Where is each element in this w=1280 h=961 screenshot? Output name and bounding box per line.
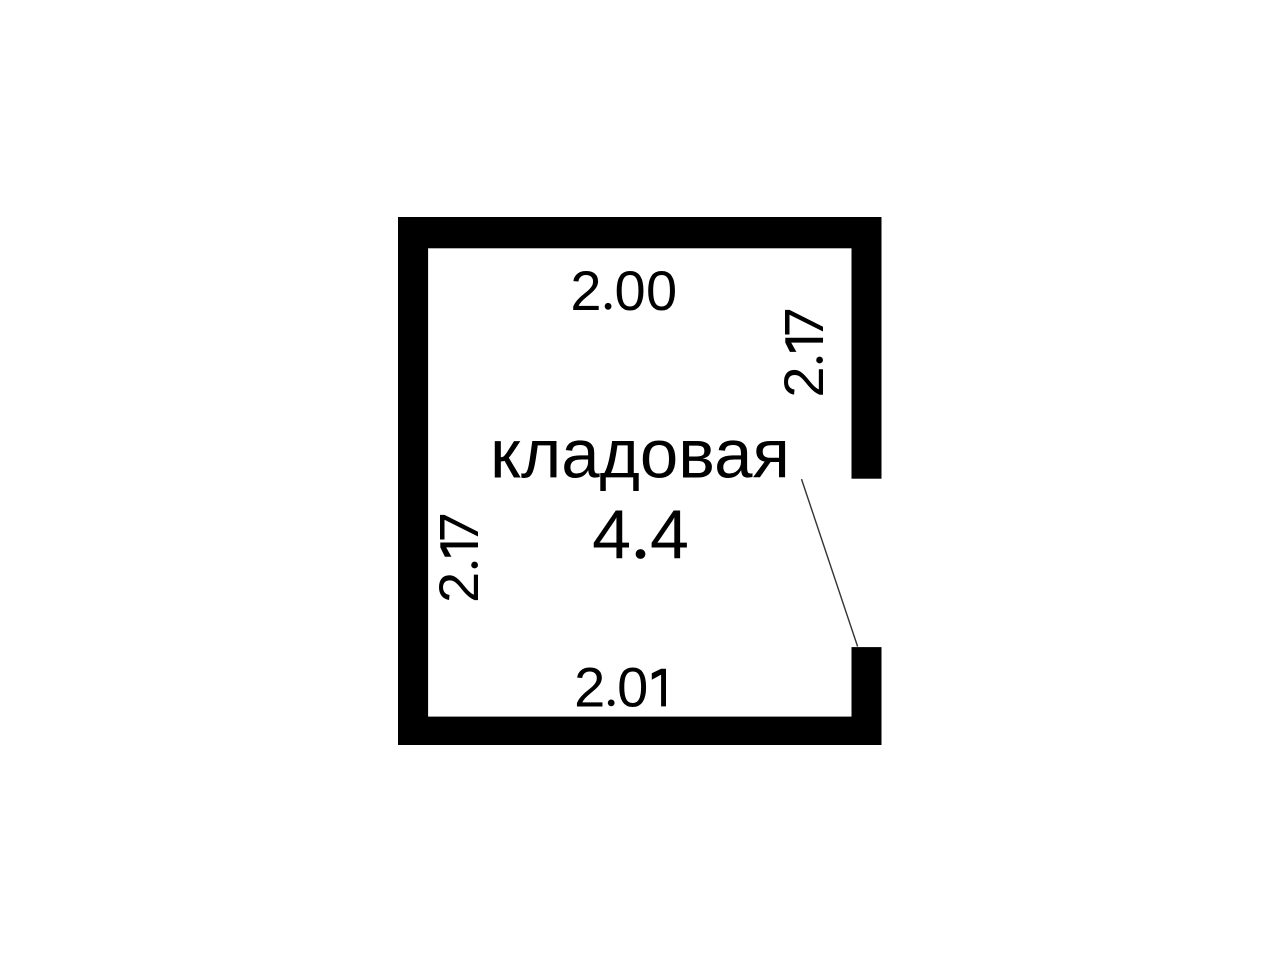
svg-text:4: 4 xyxy=(650,496,689,574)
svg-text:2: 2 xyxy=(427,572,490,603)
svg-text:4: 4 xyxy=(592,496,631,574)
svg-text:0: 0 xyxy=(615,259,646,322)
svg-text:0: 0 xyxy=(646,259,677,322)
svg-text:2: 2 xyxy=(570,259,601,322)
svg-text:0: 0 xyxy=(617,655,648,718)
svg-text:кладовая: кладовая xyxy=(490,416,790,493)
svg-text:2: 2 xyxy=(574,655,605,718)
svg-text:2: 2 xyxy=(772,366,835,397)
